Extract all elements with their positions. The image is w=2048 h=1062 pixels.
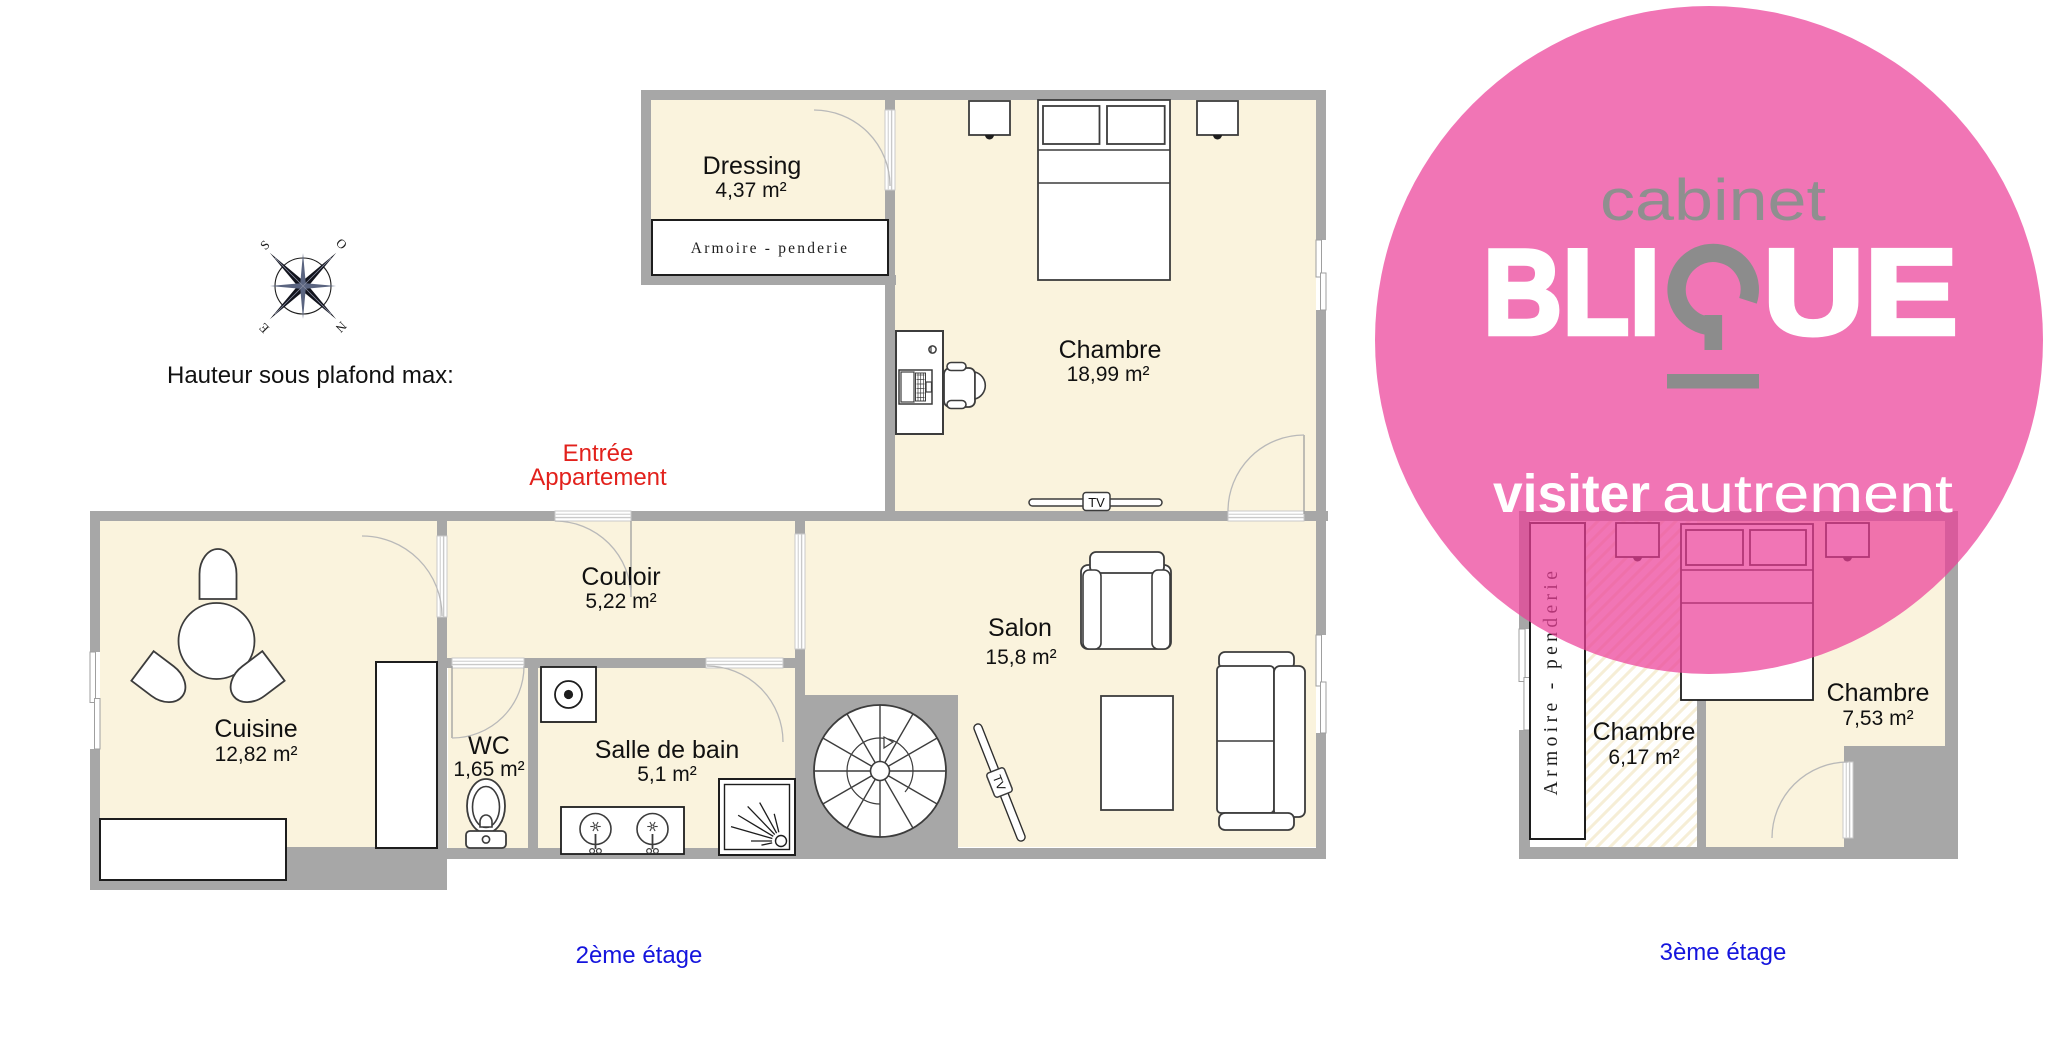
svg-text:TV: TV: [1088, 495, 1105, 510]
svg-text:4,37 m²: 4,37 m²: [715, 179, 786, 202]
svg-text:Salle de bain: Salle de bain: [595, 736, 740, 764]
svg-text:Entrée: Entrée: [563, 440, 634, 467]
svg-text:12,82 m²: 12,82 m²: [215, 743, 298, 766]
svg-text:Cuisine: Cuisine: [214, 715, 297, 743]
svg-text:visiter: visiter: [1493, 464, 1650, 524]
svg-text:Hauteur sous plafond max:: Hauteur sous plafond max:: [167, 362, 454, 389]
svg-text:1,65 m²: 1,65 m²: [453, 758, 524, 781]
svg-text:Chambre: Chambre: [1593, 718, 1696, 746]
svg-text:7,53 m²: 7,53 m²: [1842, 707, 1913, 730]
svg-text:2ème étage: 2ème étage: [576, 942, 703, 969]
svg-text:Armoire - penderie: Armoire - penderie: [691, 240, 849, 257]
svg-text:Appartement: Appartement: [529, 464, 667, 491]
svg-text:5,1 m²: 5,1 m²: [637, 763, 697, 786]
svg-text:Dressing: Dressing: [703, 152, 802, 180]
svg-text:Chambre: Chambre: [1059, 336, 1162, 364]
svg-text:WC: WC: [468, 732, 510, 760]
svg-text:autrement: autrement: [1662, 464, 1953, 524]
svg-text:Couloir: Couloir: [581, 563, 660, 591]
svg-text:Salon: Salon: [988, 614, 1052, 642]
svg-text:6,17 m²: 6,17 m²: [1608, 746, 1679, 769]
svg-text:UE: UE: [1763, 224, 1958, 360]
svg-text:3ème étage: 3ème étage: [1660, 939, 1787, 966]
svg-text:BLI: BLI: [1483, 224, 1660, 360]
svg-text:Chambre: Chambre: [1827, 679, 1930, 707]
svg-text:18,99 m²: 18,99 m²: [1067, 363, 1150, 386]
svg-text:5,22 m²: 5,22 m²: [585, 590, 656, 613]
svg-text:15,8 m²: 15,8 m²: [985, 646, 1056, 669]
